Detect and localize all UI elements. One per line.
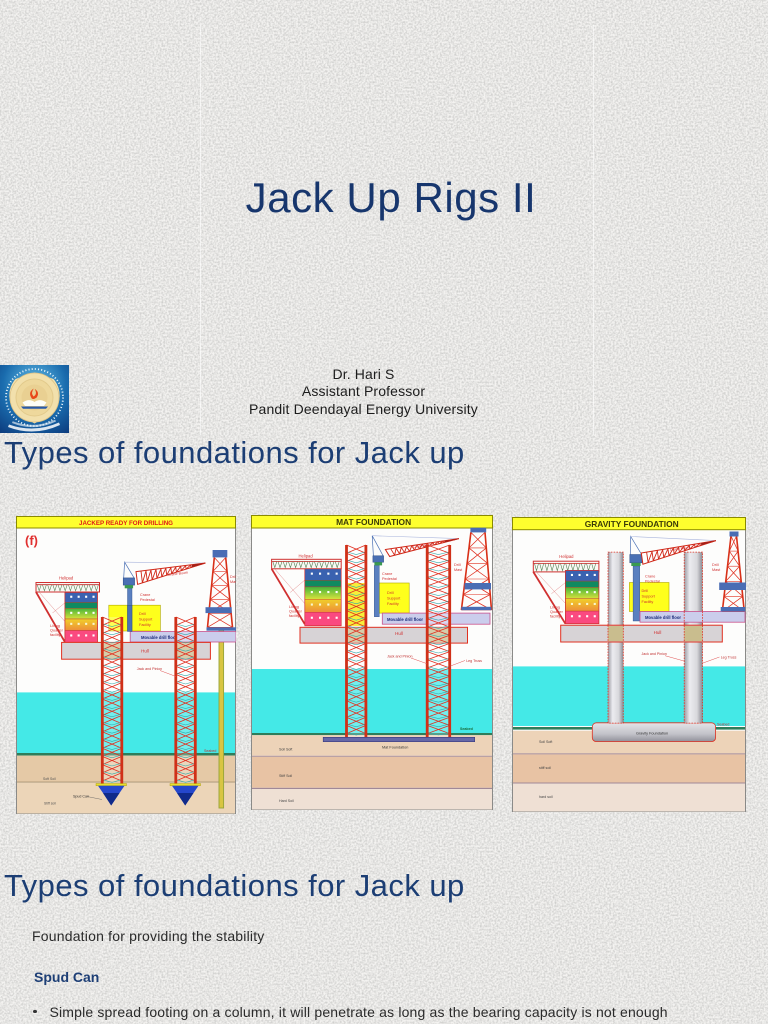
svg-text:Mast: Mast bbox=[712, 568, 721, 572]
svg-text:GRAVITY FOUNDATION: GRAVITY FOUNDATION bbox=[585, 519, 679, 529]
svg-text:Soil Soft: Soil Soft bbox=[279, 747, 292, 751]
svg-text:Soft Soil: Soft Soil bbox=[43, 777, 56, 781]
svg-text:Helipad: Helipad bbox=[559, 554, 574, 559]
svg-text:Movable drill floor: Movable drill floor bbox=[645, 615, 681, 620]
svg-text:(f): (f) bbox=[25, 533, 38, 548]
svg-text:Seabed: Seabed bbox=[717, 723, 729, 727]
svg-text:Facility: Facility bbox=[387, 602, 399, 606]
svg-text:Helipad: Helipad bbox=[59, 576, 74, 581]
svg-text:Quarter: Quarter bbox=[50, 629, 64, 633]
svg-text:Support: Support bbox=[139, 618, 153, 622]
svg-text:Crane: Crane bbox=[382, 572, 392, 576]
svg-text:Crane: Crane bbox=[140, 593, 150, 597]
svg-text:JACKEP READY FOR DRILLING: JACKEP READY FOR DRILLING bbox=[79, 520, 173, 527]
svg-text:Stiff Soil: Stiff Soil bbox=[279, 774, 292, 778]
svg-text:Support: Support bbox=[642, 595, 656, 599]
svg-text:Jack and Pinion: Jack and Pinion bbox=[137, 667, 162, 671]
svg-text:stiff soil: stiff soil bbox=[539, 766, 551, 770]
svg-text:Mast: Mast bbox=[230, 580, 236, 584]
svg-text:facility: facility bbox=[50, 633, 61, 637]
svg-text:Hull: Hull bbox=[141, 649, 149, 654]
svg-text:Drill: Drill bbox=[712, 563, 719, 567]
svg-text:Stiff soil: Stiff soil bbox=[44, 802, 56, 806]
svg-text:MAT FOUNDATION: MAT FOUNDATION bbox=[336, 517, 411, 527]
svg-text:Drill: Drill bbox=[230, 575, 236, 579]
svg-text:Quarter: Quarter bbox=[289, 610, 303, 614]
svg-text:hard soil: hard soil bbox=[539, 795, 553, 799]
svg-text:Drill: Drill bbox=[139, 612, 146, 616]
svg-text:Mat Foundation: Mat Foundation bbox=[382, 746, 408, 750]
svg-text:Movable drill floor: Movable drill floor bbox=[387, 617, 423, 622]
svg-text:Hull: Hull bbox=[654, 630, 662, 635]
svg-text:Pedestal: Pedestal bbox=[140, 598, 155, 602]
svg-text:Quarter: Quarter bbox=[550, 610, 564, 614]
svg-text:Crane: Crane bbox=[645, 575, 655, 579]
svg-text:Hull: Hull bbox=[395, 631, 403, 636]
svg-text:Drill: Drill bbox=[454, 563, 461, 567]
svg-text:Jack and Pinion: Jack and Pinion bbox=[387, 654, 412, 658]
svg-text:Living: Living bbox=[550, 606, 560, 610]
svg-text:Jack and Pinion: Jack and Pinion bbox=[642, 652, 667, 656]
svg-text:Gravity Foundation: Gravity Foundation bbox=[636, 732, 668, 736]
svg-text:Drill: Drill bbox=[642, 589, 649, 593]
svg-text:Hard Soil: Hard Soil bbox=[279, 799, 294, 803]
svg-text:Seabed: Seabed bbox=[204, 749, 216, 753]
svg-text:Spud Can: Spud Can bbox=[73, 795, 89, 799]
svg-text:Mast: Mast bbox=[454, 568, 463, 572]
svg-text:Support: Support bbox=[387, 597, 401, 601]
svg-text:Leg Truss: Leg Truss bbox=[466, 659, 482, 663]
svg-text:Facility: Facility bbox=[642, 600, 654, 604]
svg-text:Leg Truss: Leg Truss bbox=[721, 656, 737, 660]
svg-text:Movable drill floor: Movable drill floor bbox=[141, 635, 177, 640]
svg-text:facility: facility bbox=[550, 615, 561, 619]
svg-text:Drill: Drill bbox=[387, 591, 394, 595]
svg-text:facility: facility bbox=[289, 614, 300, 618]
svg-text:Pedestal: Pedestal bbox=[645, 580, 660, 584]
svg-text:Pedestal: Pedestal bbox=[382, 577, 397, 581]
svg-text:Soil Soft: Soil Soft bbox=[539, 740, 552, 744]
svg-text:Facility: Facility bbox=[139, 623, 151, 627]
svg-text:Helipad: Helipad bbox=[299, 554, 314, 559]
svg-text:Living: Living bbox=[50, 624, 60, 628]
svg-text:Living: Living bbox=[289, 605, 299, 609]
svg-text:Seabed: Seabed bbox=[460, 727, 473, 731]
